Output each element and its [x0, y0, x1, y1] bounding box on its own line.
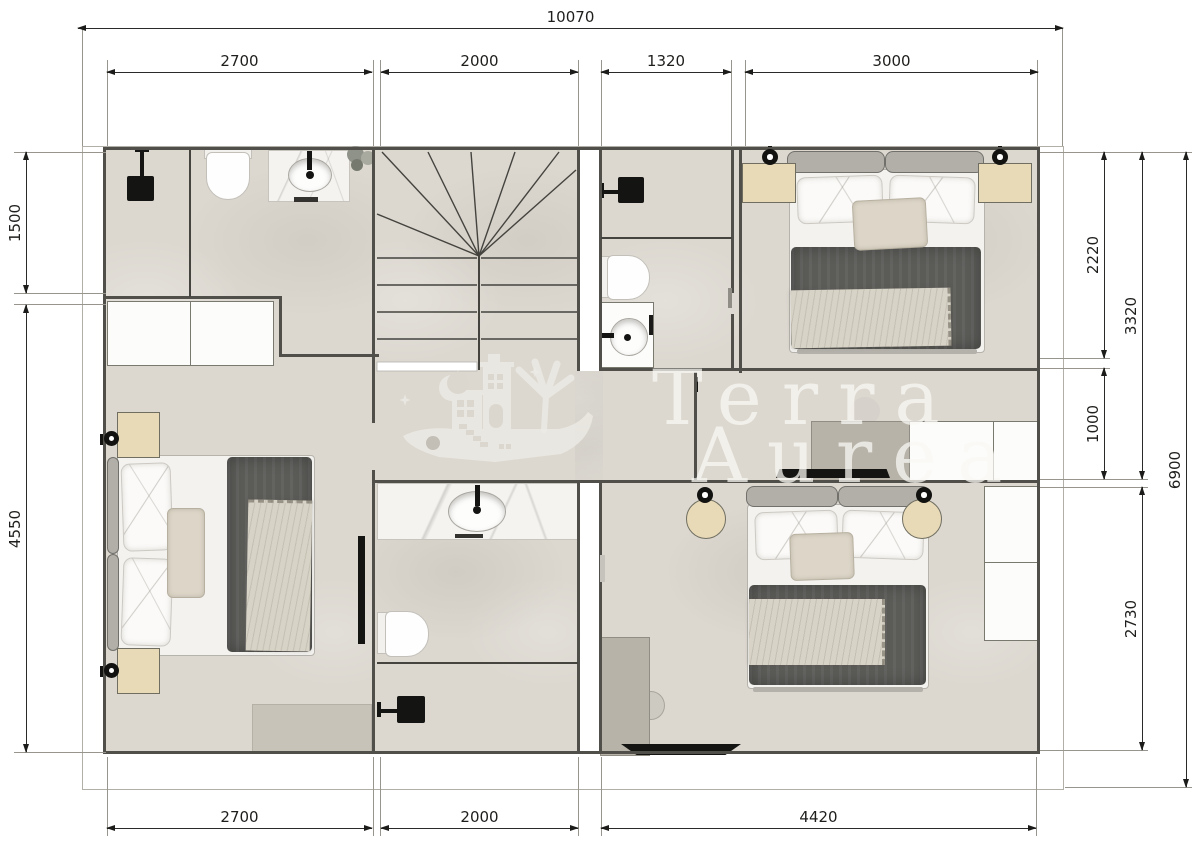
round-nightstand	[686, 499, 726, 539]
arrow-right-icon	[570, 825, 579, 831]
wall-lamp-icon	[697, 487, 713, 503]
arrow-left-icon	[600, 825, 609, 831]
dim-right-2730: 2730	[1142, 487, 1143, 750]
rug	[252, 704, 372, 754]
headboard	[746, 486, 838, 507]
dim-bottom-4420: 4420	[601, 828, 1036, 829]
dim-left-4550: 4550	[26, 305, 27, 752]
faucet-drain	[624, 334, 631, 341]
arrow-right-icon	[1028, 825, 1037, 831]
shower-head-icon	[618, 177, 644, 203]
throw-blanket	[246, 499, 313, 651]
extension-line	[1065, 787, 1192, 788]
pillow	[120, 462, 173, 552]
dim-top-2700: 2700	[107, 72, 372, 73]
wall-segment	[599, 368, 1040, 371]
arrow-up-icon	[1183, 151, 1189, 160]
wall-exterior-top	[103, 147, 1040, 150]
cushion	[789, 532, 855, 581]
dim-top-2000: 2000	[381, 72, 578, 73]
wall-exterior-right	[1037, 147, 1040, 754]
wall-segment	[103, 296, 282, 299]
wall-segment	[577, 147, 580, 371]
dim-label: 4550	[6, 509, 24, 547]
nightstand	[117, 412, 160, 458]
extension-line	[1040, 750, 1148, 751]
door-mark	[728, 288, 732, 308]
arrow-left-icon	[77, 25, 86, 31]
arrow-down-icon	[23, 744, 29, 753]
extension-line	[1062, 28, 1063, 146]
wardrobe	[107, 301, 192, 366]
dim-right-2220: 2220	[1104, 152, 1105, 358]
wall-segment	[694, 372, 697, 482]
shower-partition	[601, 237, 732, 239]
dim-label: 1000	[1084, 404, 1102, 442]
wall-tv	[358, 536, 365, 644]
faucet	[307, 151, 312, 170]
dim-bottom-2000: 2000	[381, 828, 578, 829]
nightstand	[742, 163, 796, 203]
cushion	[852, 197, 929, 251]
extension-line	[82, 28, 83, 146]
arrow-up-icon	[23, 151, 29, 160]
arrow-up-icon	[1101, 367, 1107, 376]
dim-bottom-2700: 2700	[107, 828, 372, 829]
faucet-drain	[473, 506, 481, 514]
shower-partition	[189, 150, 191, 297]
extension-line	[1040, 479, 1148, 480]
pillow	[120, 557, 173, 647]
winder-staircase	[375, 148, 579, 372]
toilet-icon	[385, 611, 429, 657]
dim-label: 4420	[601, 808, 1036, 826]
dim-top-1320: 1320	[601, 72, 731, 73]
dim-top-3000: 3000	[745, 72, 1038, 73]
laptop	[776, 469, 890, 478]
shower-arm	[140, 151, 144, 178]
faucet	[601, 333, 614, 338]
arrow-up-icon	[1139, 151, 1145, 160]
dim-right-1000: 1000	[1104, 368, 1105, 479]
arrow-down-icon	[1139, 471, 1145, 480]
extension-line	[373, 757, 374, 836]
throw-blanket	[791, 288, 952, 349]
arrow-right-icon	[570, 69, 579, 75]
dim-right-6900: 6900	[1186, 152, 1187, 787]
dim-label: 1320	[601, 52, 731, 70]
dim-label: 2000	[381, 808, 578, 826]
wall-lamp-icon	[104, 431, 119, 446]
dim-label: 2000	[381, 52, 578, 70]
dim-left-1500: 1500	[26, 152, 27, 293]
dim-label: 2220	[1084, 236, 1102, 274]
headboard	[787, 151, 885, 173]
toilet-icon	[607, 255, 650, 300]
arrow-up-icon	[1101, 151, 1107, 160]
dim-label: 3320	[1122, 296, 1140, 334]
dim-right-3320: 3320	[1142, 152, 1143, 479]
wall-segment	[599, 147, 602, 371]
wall-exterior-bottom	[103, 751, 1040, 754]
wardrobe	[984, 486, 1040, 564]
wall-segment	[577, 480, 580, 754]
arrow-down-icon	[1183, 779, 1189, 788]
dim-top-total: 10070	[78, 28, 1063, 29]
arrow-left-icon	[380, 825, 389, 831]
extension-line	[1040, 152, 1192, 153]
arrow-right-icon	[723, 69, 732, 75]
arrow-right-icon	[364, 825, 373, 831]
cushion	[167, 508, 205, 598]
dim-label: 2700	[107, 52, 372, 70]
arrow-left-icon	[600, 69, 609, 75]
wall-lamp-icon	[762, 149, 778, 165]
extension-line	[1040, 368, 1110, 369]
arrow-right-icon	[364, 69, 373, 75]
headboard	[107, 457, 119, 554]
shower-head-icon	[397, 696, 425, 723]
desk	[600, 637, 650, 756]
arrow-left-icon	[744, 69, 753, 75]
dim-label: 1500	[6, 203, 24, 241]
wall-segment	[279, 354, 379, 357]
bed-base	[753, 687, 923, 692]
arrow-right-icon	[1055, 25, 1064, 31]
toilet-icon	[206, 152, 250, 200]
faucet	[475, 485, 480, 506]
arrow-left-icon	[106, 825, 115, 831]
wall-exterior-left	[103, 147, 106, 754]
extension-line	[1040, 358, 1110, 359]
headboard	[107, 554, 119, 651]
dim-label: 2730	[1122, 599, 1140, 637]
wall-segment	[279, 296, 282, 357]
floor-plan-canvas: Terra Aurea 10070 2700 2000 1320 3000	[0, 0, 1200, 856]
plant-leaf	[351, 159, 363, 171]
shower-partition	[377, 662, 578, 664]
wall-lamp-icon	[992, 149, 1008, 165]
arrow-up-icon	[23, 304, 29, 313]
wall-segment	[739, 147, 742, 373]
arrow-down-icon	[1101, 350, 1107, 359]
faucet-drain	[306, 171, 314, 179]
extension-line	[373, 60, 374, 146]
round-nightstand	[902, 499, 942, 539]
wall-segment	[372, 470, 375, 754]
arrow-up-icon	[1139, 486, 1145, 495]
bed-base	[797, 349, 977, 354]
dim-label: 3000	[745, 52, 1038, 70]
wall-segment	[599, 480, 602, 754]
wall-lamp-icon	[916, 487, 932, 503]
wall-segment	[372, 147, 375, 423]
wardrobe	[190, 301, 274, 366]
wardrobe	[993, 421, 1040, 481]
arrow-down-icon	[23, 285, 29, 294]
nightstand	[978, 163, 1032, 203]
wall-segment	[731, 314, 734, 371]
arrow-right-icon	[1030, 69, 1039, 75]
wall-segment	[731, 147, 734, 293]
dim-label: 6900	[1166, 450, 1184, 488]
dim-label: 2700	[107, 808, 372, 826]
towel-bar	[649, 315, 653, 335]
arrow-left-icon	[380, 69, 389, 75]
stair-landing-strip	[377, 362, 477, 371]
nightstand	[117, 648, 160, 694]
wall-lamp-icon	[104, 663, 119, 678]
vanity-handle	[294, 197, 318, 202]
throw-blanket	[749, 599, 885, 665]
vanity-handle	[455, 534, 483, 538]
dim-label: 10070	[78, 8, 1063, 26]
wardrobe	[984, 562, 1040, 641]
arrow-down-icon	[1101, 471, 1107, 480]
door-mark	[600, 555, 605, 582]
shower-head-icon	[127, 176, 154, 201]
extension-line	[1040, 487, 1148, 488]
arrow-left-icon	[106, 69, 115, 75]
arrow-down-icon	[1139, 742, 1145, 751]
wall-segment	[375, 480, 1040, 483]
wardrobe	[909, 421, 995, 481]
headboard	[885, 151, 984, 173]
